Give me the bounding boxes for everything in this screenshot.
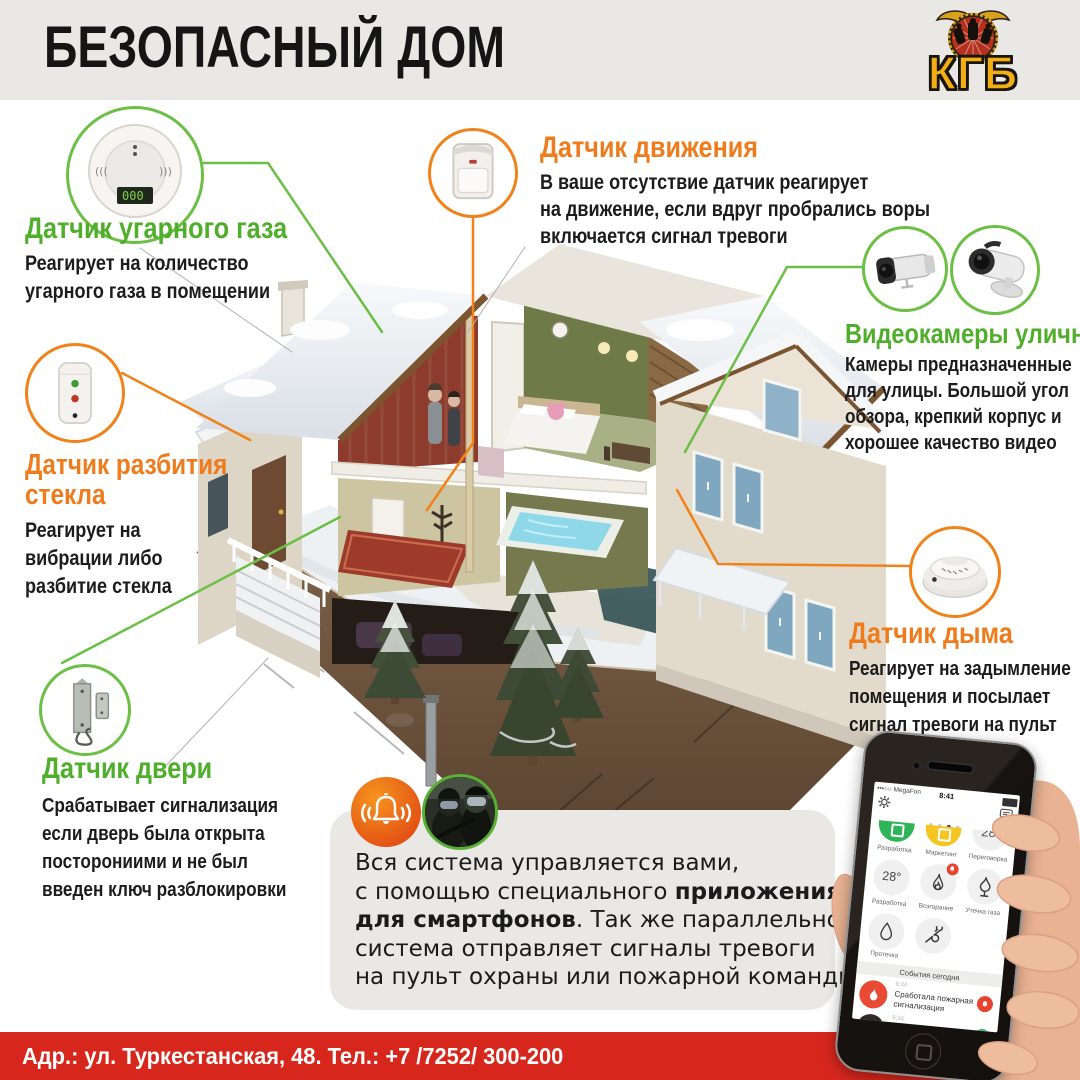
hand-fingers	[0, 0, 1080, 1080]
infographic-safe-house: БЕЗОПАСНЫЙ ДОМ КГБ	[0, 0, 1080, 1080]
